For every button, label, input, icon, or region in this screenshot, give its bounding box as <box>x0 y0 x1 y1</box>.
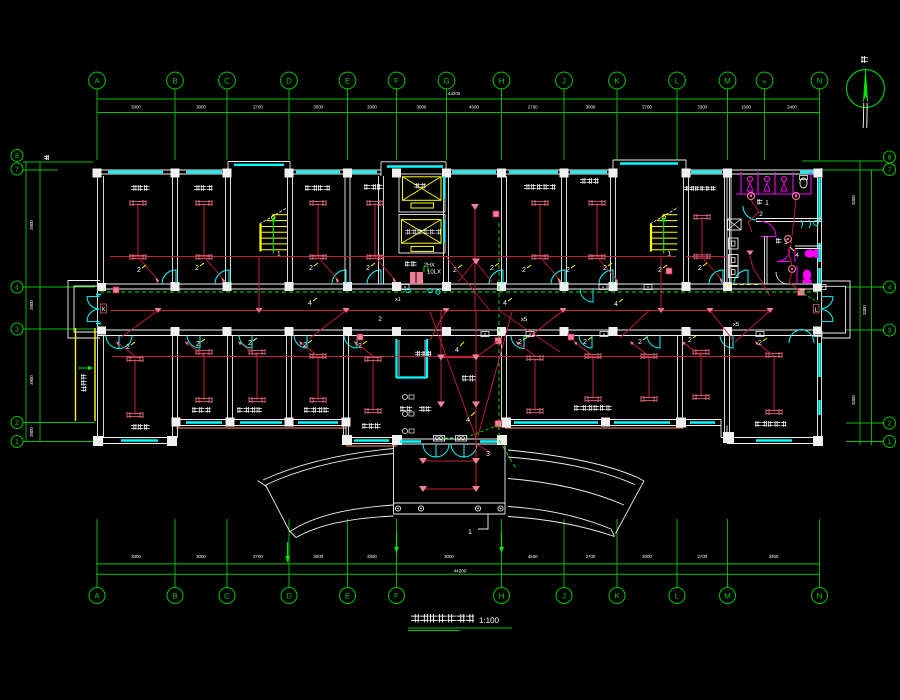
svg-text:4: 4 <box>503 300 507 307</box>
svg-text:3300: 3300 <box>697 105 707 110</box>
svg-text:4: 4 <box>614 301 618 308</box>
svg-text:2: 2 <box>126 344 130 351</box>
svg-text:2: 2 <box>195 265 199 272</box>
svg-text:E: E <box>345 77 350 86</box>
svg-text:3300: 3300 <box>367 105 377 110</box>
svg-text:2: 2 <box>15 420 19 427</box>
svg-text:3000: 3000 <box>586 105 596 110</box>
svg-text:2: 2 <box>248 340 252 347</box>
svg-text:2700: 2700 <box>253 105 263 110</box>
svg-text:J: J <box>562 77 566 86</box>
svg-text:3300: 3300 <box>851 395 856 405</box>
svg-text:3000: 3000 <box>313 554 323 559</box>
svg-text:4: 4 <box>466 417 470 424</box>
svg-text:2: 2 <box>759 211 763 218</box>
svg-text:8: 8 <box>888 155 892 162</box>
svg-text:M: M <box>724 77 731 86</box>
svg-text:2: 2 <box>888 421 892 428</box>
svg-text:3300: 3300 <box>851 195 856 205</box>
svg-text:2: 2 <box>522 267 526 274</box>
svg-text:2: 2 <box>566 267 570 274</box>
svg-text:3: 3 <box>888 328 892 335</box>
svg-text:2: 2 <box>366 265 370 272</box>
svg-text:1: 1 <box>468 529 472 536</box>
svg-text:2: 2 <box>490 265 494 272</box>
svg-text:C: C <box>224 592 230 601</box>
svg-text:3000: 3000 <box>444 554 454 559</box>
svg-text:8: 8 <box>15 153 19 160</box>
svg-text:B: B <box>172 77 177 86</box>
svg-text:3900: 3900 <box>29 300 34 310</box>
svg-text:3000: 3000 <box>196 554 206 559</box>
svg-text:3000: 3000 <box>417 105 427 110</box>
svg-text:C: C <box>224 77 230 86</box>
svg-text:3300: 3300 <box>769 554 779 559</box>
svg-text:A: A <box>94 592 100 601</box>
svg-text:1500: 1500 <box>741 105 751 110</box>
svg-text:x1: x1 <box>395 297 401 303</box>
svg-text:10LX: 10LX <box>427 269 441 276</box>
svg-text:2400: 2400 <box>787 105 797 110</box>
svg-text:x5: x5 <box>521 316 528 323</box>
svg-text:D: D <box>286 77 292 86</box>
svg-text:A: A <box>94 77 100 86</box>
svg-text:4: 4 <box>888 285 892 292</box>
svg-text:2HX: 2HX <box>424 263 435 269</box>
svg-text:3300: 3300 <box>862 305 867 315</box>
svg-text:G: G <box>443 77 449 86</box>
svg-text:1:100: 1:100 <box>479 616 500 625</box>
svg-text:2700: 2700 <box>642 105 652 110</box>
svg-text:4500: 4500 <box>469 105 479 110</box>
svg-text:44200: 44200 <box>454 569 467 574</box>
svg-text:3300: 3300 <box>131 554 141 559</box>
svg-text:3000: 3000 <box>642 554 652 559</box>
svg-text:N: N <box>817 77 823 86</box>
svg-text:2: 2 <box>303 342 307 349</box>
svg-text:H: H <box>499 77 505 86</box>
svg-text:2700: 2700 <box>697 554 707 559</box>
svg-text:2: 2 <box>688 337 692 344</box>
svg-text:44200: 44200 <box>448 91 461 96</box>
svg-text:E: E <box>345 592 350 601</box>
svg-text:2: 2 <box>658 267 662 274</box>
svg-text:x5: x5 <box>733 321 740 328</box>
svg-text:4: 4 <box>795 252 799 259</box>
svg-text:K: K <box>614 77 620 86</box>
svg-text:N: N <box>817 592 823 601</box>
svg-text:1: 1 <box>888 439 892 446</box>
svg-text:2: 2 <box>603 265 607 272</box>
svg-text:3300: 3300 <box>131 105 141 110</box>
svg-text:7: 7 <box>888 167 892 174</box>
svg-text:M: M <box>762 80 766 86</box>
svg-text:3900: 3900 <box>29 375 34 385</box>
svg-text:D: D <box>286 592 292 601</box>
svg-text:2: 2 <box>309 265 313 272</box>
svg-text:3300: 3300 <box>367 554 377 559</box>
svg-text:2: 2 <box>358 343 362 350</box>
svg-text:2: 2 <box>196 341 200 348</box>
svg-text:1: 1 <box>765 200 769 207</box>
svg-text:4: 4 <box>15 285 19 292</box>
svg-text:F: F <box>394 77 399 86</box>
svg-text:2700: 2700 <box>586 554 596 559</box>
svg-text:3: 3 <box>15 327 19 334</box>
svg-text:4: 4 <box>455 347 459 354</box>
svg-text:2: 2 <box>583 339 587 346</box>
svg-text:3000: 3000 <box>313 105 323 110</box>
svg-text:2: 2 <box>758 340 762 347</box>
svg-text:M: M <box>724 592 731 601</box>
svg-text:2: 2 <box>378 316 382 323</box>
svg-text:2: 2 <box>638 339 642 346</box>
svg-text:F: F <box>394 592 399 601</box>
svg-text:3900: 3900 <box>29 427 34 437</box>
svg-text:B: B <box>172 592 177 601</box>
svg-text:K: K <box>101 306 105 313</box>
svg-text:7: 7 <box>15 167 19 174</box>
svg-text:K: K <box>614 592 620 601</box>
svg-text:L: L <box>815 307 819 314</box>
svg-text:L: L <box>675 77 680 86</box>
svg-text:H: H <box>499 592 505 601</box>
svg-text:J: J <box>562 592 566 601</box>
svg-text:2700: 2700 <box>528 105 538 110</box>
svg-text:3: 3 <box>486 451 490 458</box>
svg-text:2: 2 <box>137 267 141 274</box>
svg-text:2: 2 <box>698 265 702 272</box>
svg-text:2: 2 <box>518 339 522 346</box>
svg-text:3000: 3000 <box>196 105 206 110</box>
svg-text:2700: 2700 <box>253 554 263 559</box>
svg-text:1: 1 <box>15 439 19 446</box>
svg-text:L: L <box>675 592 680 601</box>
svg-text:4500: 4500 <box>528 554 538 559</box>
svg-text:4: 4 <box>308 300 312 307</box>
svg-text:3900: 3900 <box>29 220 34 230</box>
